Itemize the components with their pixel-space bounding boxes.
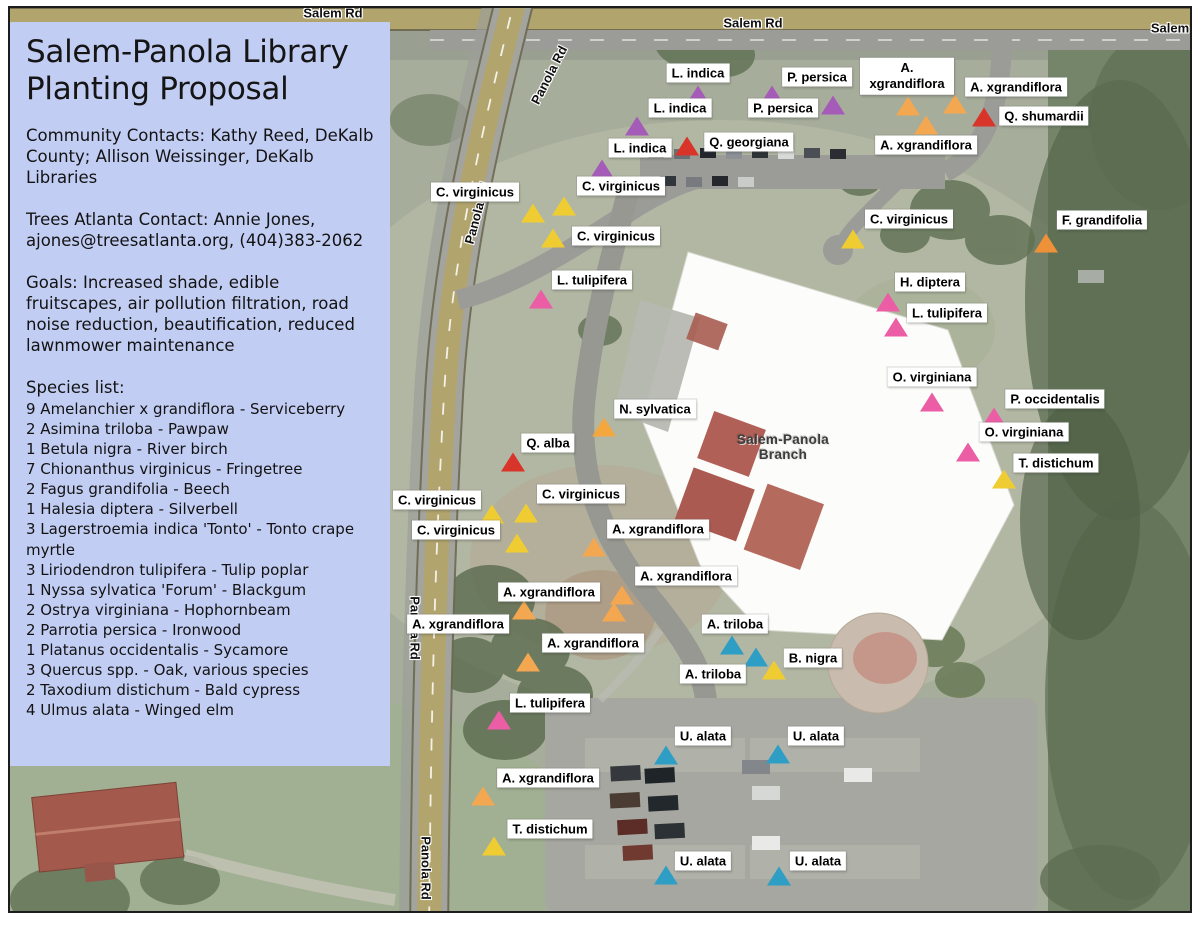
tree-marker-triangle	[514, 504, 538, 523]
tree-marker-triangle	[512, 601, 536, 620]
road-label: Salem Rd	[723, 16, 782, 31]
species-label: P. occidentalis	[1005, 390, 1104, 409]
species-list-item: 2 Asimina triloba - Pawpaw	[26, 419, 374, 439]
tree-marker-triangle	[920, 393, 944, 412]
species-label: L. indica	[667, 64, 730, 83]
species-label: A. xgrandiflora	[860, 58, 954, 95]
species-label: A. xgrandiflora	[498, 583, 600, 602]
road-label: Salem Rd	[303, 6, 362, 21]
tree-marker-triangle	[582, 538, 606, 557]
tree-marker-triangle	[876, 293, 900, 312]
species-list-item: 3 Liriodendron tulipifera - Tulip poplar	[26, 560, 374, 580]
species-list: 9 Amelanchier x grandiflora - Serviceber…	[26, 399, 374, 721]
species-label: C. virginicus	[572, 227, 660, 246]
species-label: P. persica	[782, 68, 852, 87]
tree-marker-triangle	[654, 746, 678, 765]
tree-marker-triangle	[992, 470, 1016, 489]
species-list-item: 3 Quercus spp. - Oak, various species	[26, 660, 374, 680]
species-label: U. alata	[675, 727, 731, 746]
species-label: L. indica	[649, 99, 712, 118]
species-list-item: 2 Parrotia persica - Ironwood	[26, 620, 374, 640]
building-label: Salem-Panola Branch	[737, 432, 829, 462]
species-list-item: 4 Ulmus alata - Winged elm	[26, 700, 374, 720]
species-list-item: 7 Chionanthus virginicus - Fringetree	[26, 459, 374, 479]
tree-marker-triangle	[896, 97, 920, 116]
species-list-item: 1 Betula nigra - River birch	[26, 439, 374, 459]
tree-marker-triangle	[821, 96, 845, 115]
species-label: A. xgrandiflora	[875, 136, 977, 155]
tree-marker-triangle	[541, 229, 565, 248]
species-label: T. distichum	[507, 820, 592, 839]
tree-marker-triangle	[482, 837, 506, 856]
species-label: N. sylvatica	[614, 400, 696, 419]
tree-marker-triangle	[762, 661, 786, 680]
tree-marker-triangle	[675, 137, 699, 156]
species-label: A. xgrandiflora	[497, 769, 599, 788]
species-list-item: 1 Nyssa sylvatica 'Forum' - Blackgum	[26, 580, 374, 600]
species-label: C. virginicus	[412, 521, 500, 540]
aerial-map: Salem RdSalem RdSalemPanola RdPanola RdP…	[8, 6, 1192, 913]
tree-marker-triangle	[914, 116, 938, 135]
species-label: A. xgrandiflora	[607, 520, 709, 539]
species-label: Q. georgiana	[704, 133, 793, 152]
tree-marker-triangle	[1034, 234, 1058, 253]
tree-marker-triangle	[487, 711, 511, 730]
species-label: U. alata	[790, 852, 846, 871]
species-list-item: 2 Fagus grandifolia - Beech	[26, 479, 374, 499]
species-label: A. xgrandiflora	[407, 615, 509, 634]
species-label: A. xgrandiflora	[965, 78, 1067, 97]
tree-marker-triangle	[720, 636, 744, 655]
species-label: T. distichum	[1013, 454, 1098, 473]
species-list-item: 2 Taxodium distichum - Bald cypress	[26, 680, 374, 700]
tree-marker-triangle	[592, 418, 616, 437]
species-label: C. virginicus	[393, 491, 481, 510]
species-label: A. xgrandiflora	[542, 634, 644, 653]
species-label: L. tulipifera	[907, 304, 987, 323]
building-label-line2: Branch	[737, 447, 829, 462]
tree-marker-triangle	[552, 197, 576, 216]
map-canvas: Salem RdSalem RdSalemPanola RdPanola RdP…	[8, 6, 1192, 913]
road-label: Salem	[1151, 21, 1189, 36]
species-label: O. virginiana	[888, 368, 977, 387]
tree-marker-triangle	[505, 534, 529, 553]
species-list-item: 9 Amelanchier x grandiflora - Serviceber…	[26, 399, 374, 419]
species-label: C. virginicus	[537, 485, 625, 504]
species-label: L. tulipifera	[510, 694, 590, 713]
tree-marker-triangle	[521, 204, 545, 223]
species-list-heading: Species list:	[26, 378, 374, 399]
tree-marker-triangle	[841, 230, 865, 249]
species-label: Q. alba	[521, 434, 574, 453]
tree-marker-triangle	[529, 290, 553, 309]
species-label: A. triloba	[702, 615, 768, 634]
species-label: O. virginiana	[980, 423, 1069, 442]
species-list-item: 2 Ostrya virginiana - Hophornbeam	[26, 600, 374, 620]
species-list-item: 3 Lagerstroemia indica 'Tonto' - Tonto c…	[26, 519, 374, 559]
species-label: U. alata	[675, 852, 731, 871]
species-label: P. persica	[748, 99, 818, 118]
tree-marker-triangle	[943, 95, 967, 114]
tree-marker-triangle	[625, 117, 649, 136]
tree-marker-triangle	[602, 603, 626, 622]
species-label: C. virginicus	[577, 177, 665, 196]
tree-marker-triangle	[766, 745, 790, 764]
tree-marker-triangle	[956, 443, 980, 462]
species-label: A. triloba	[680, 665, 746, 684]
tree-marker-triangle	[884, 318, 908, 337]
community-contacts: Community Contacts: Kathy Reed, DeKalb C…	[26, 126, 374, 189]
goals: Goals: Increased shade, edible fruitscap…	[26, 273, 374, 357]
species-label: A. xgrandiflora	[635, 567, 737, 586]
trees-atlanta-contact: Trees Atlanta Contact: Annie Jones, ajon…	[26, 210, 374, 252]
species-label: L. indica	[609, 139, 672, 158]
road-label: Panola Rd	[419, 836, 434, 900]
species-list-item: 1 Halesia diptera - Silverbell	[26, 499, 374, 519]
info-panel: Salem-Panola Library Planting Proposal C…	[10, 22, 390, 766]
species-label: C. virginicus	[431, 183, 519, 202]
species-label: U. alata	[788, 727, 844, 746]
species-label: C. virginicus	[865, 210, 953, 229]
tree-marker-triangle	[516, 653, 540, 672]
species-list-item: 1 Platanus occidentalis - Sycamore	[26, 640, 374, 660]
species-label: H. diptera	[895, 273, 965, 292]
poster-title: Salem-Panola Library Planting Proposal	[26, 34, 374, 108]
species-label: B. nigra	[784, 649, 842, 668]
building-label-line1: Salem-Panola	[737, 432, 829, 447]
tree-marker-triangle	[767, 867, 791, 886]
species-label: F. grandifolia	[1057, 211, 1147, 230]
tree-marker-triangle	[501, 453, 525, 472]
species-label: Q. shumardii	[999, 107, 1088, 126]
tree-marker-triangle	[471, 787, 495, 806]
species-label: L. tulipifera	[552, 271, 632, 290]
tree-marker-triangle	[972, 108, 996, 127]
